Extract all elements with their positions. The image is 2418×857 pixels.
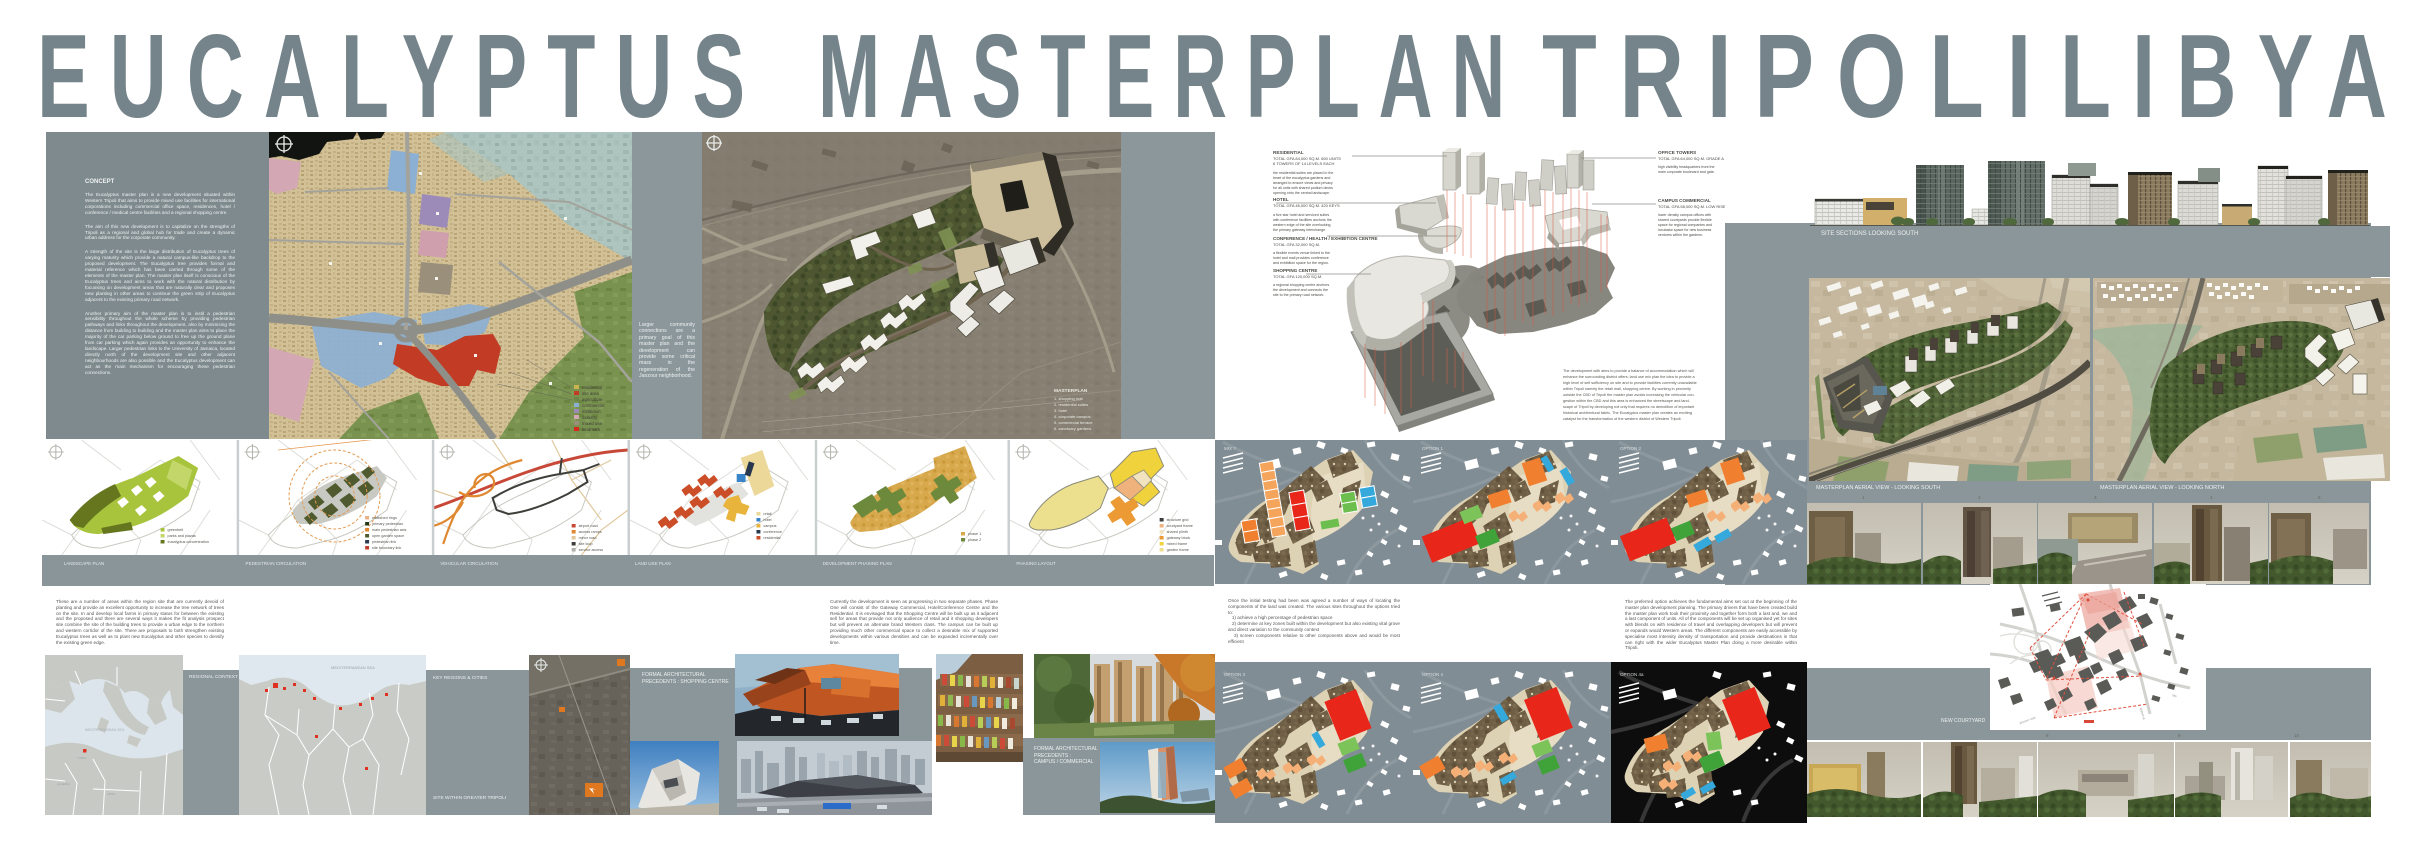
svg-text:main pedestrian axis: main pedestrian axis <box>372 528 406 532</box>
svg-text:OPTION 4a: OPTION 4a <box>1620 672 1644 677</box>
svg-text:ALGERIA: ALGERIA <box>57 782 70 786</box>
svg-text:structure grid: structure grid <box>1167 518 1189 522</box>
svg-text:CONFERENCE / HEALTH / EXHIBITI: CONFERENCE / HEALTH / EXHIBITION CENTRE <box>1273 236 1378 241</box>
svg-text:high visibility headquarters f: high visibility headquarters front the <box>1658 165 1715 169</box>
svg-text:site area: site area <box>582 391 599 396</box>
svg-text:mixed use: mixed use <box>582 421 603 426</box>
svg-text:minor road: minor road <box>579 536 597 540</box>
svg-text:5. commercial terrace: 5. commercial terrace <box>1054 420 1093 425</box>
svg-text:RESIDENTIAL: RESIDENTIAL <box>1273 150 1304 155</box>
svg-text:LIBYA: LIBYA <box>107 792 115 796</box>
svg-text:commercial: commercial <box>582 403 604 408</box>
svg-text:4. corporate campus: 4. corporate campus <box>1054 414 1090 419</box>
svg-text:and exhibition space for the r: and exhibition space for the region. <box>1273 261 1329 265</box>
svg-text:opening onto the central lands: opening onto the central landscape. <box>1273 191 1330 195</box>
svg-text:2. residential suites: 2. residential suites <box>1054 402 1088 407</box>
svg-text:VEHICULAR CIRCULATION: VEHICULAR CIRCULATION <box>440 561 498 566</box>
svg-text:OPTION 3: OPTION 3 <box>1224 672 1246 677</box>
svg-text:service access: service access <box>579 548 604 552</box>
svg-text:3. hotel: 3. hotel <box>1054 408 1067 413</box>
svg-text:ventures within the gardens.: ventures within the gardens. <box>1658 233 1703 237</box>
svg-text:main corporate boulevard and g: main corporate boulevard and gate. <box>1658 170 1715 174</box>
svg-text:greenbelt: greenbelt <box>168 528 185 532</box>
svg-text:gateway block: gateway block <box>1167 536 1191 540</box>
svg-text:institution: institution <box>582 409 601 414</box>
svg-text:residential: residential <box>763 536 780 540</box>
svg-text:MIX ?: MIX ? <box>1224 446 1236 451</box>
svg-text:primary pedestrian: primary pedestrian <box>372 522 403 526</box>
svg-text:courtyard frame: courtyard frame <box>1167 524 1193 528</box>
svg-text:campus: campus <box>763 524 776 528</box>
svg-text:incubator space for new busine: incubator space for new business <box>1658 228 1712 232</box>
svg-text:site boundary link: site boundary link <box>372 546 401 550</box>
svg-text:TOTAL GFA 120,000 SQ.M.: TOTAL GFA 120,000 SQ.M. <box>1273 274 1322 279</box>
svg-text:TUNIS: TUNIS <box>77 756 86 760</box>
svg-text:heart of the eucalyptus garden: heart of the eucalyptus gardens and <box>1273 176 1330 180</box>
svg-text:MEDITERRANEAN SEA: MEDITERRANEAN SEA <box>331 665 375 670</box>
svg-text:TOTAL GFA 46,000 SQ.M. 420 KEY: TOTAL GFA 46,000 SQ.M. 420 KEYS <box>1273 203 1340 208</box>
svg-text:MASTERPLAN: MASTERPLAN <box>1054 388 1088 394</box>
svg-text:hotel: hotel <box>763 518 771 522</box>
svg-text:eucalyptus concentration: eucalyptus concentration <box>168 540 209 544</box>
svg-text:TOTAL GFA 32,000 SQ.M.: TOTAL GFA 32,000 SQ.M. <box>1273 242 1320 247</box>
svg-text:a flexible events venue linked: a flexible events venue linked to the <box>1273 251 1330 255</box>
svg-text:shared courtyards provide flex: shared courtyards provide flexible <box>1658 218 1712 222</box>
svg-text:with conference facilities anc: with conference facilities anchors the <box>1273 218 1332 222</box>
svg-text:CAMPUS COMMERCIAL: CAMPUS COMMERCIAL <box>1658 198 1711 203</box>
svg-text:TOTAL GFA 64,000 SQ.M. GRADE A: TOTAL GFA 64,000 SQ.M. GRADE A <box>1658 156 1724 161</box>
svg-text:for all units with shared podi: for all units with shared podium decks <box>1273 186 1333 190</box>
svg-text:residential: residential <box>582 385 602 390</box>
svg-text:TOTAL GFA 58,000 SQ.M. LOW RIS: TOTAL GFA 58,000 SQ.M. LOW RISE <box>1658 204 1725 209</box>
svg-text:site to the primary road netwo: site to the primary road network. <box>1273 293 1324 297</box>
svg-text:scape of Tripoli by developing: scape of Tripoli by developing not only … <box>1563 405 1695 409</box>
svg-text:gestion within the CBD and thi: gestion within the CBD and this area is … <box>1563 399 1691 403</box>
svg-text:EUCALYPTUS: EUCALYPTUS <box>37 10 765 130</box>
svg-text:the residential suites are pla: the residential suites are placed in the <box>1273 171 1333 175</box>
svg-text:shared plinth: shared plinth <box>1167 530 1188 534</box>
svg-text:LANDSCAPE PLAN: LANDSCAPE PLAN <box>64 561 105 566</box>
svg-text:parks and plazas: parks and plazas <box>168 534 196 538</box>
svg-text:DEVELOPMENT PHASING PLAN: DEVELOPMENT PHASING PLAN <box>823 561 892 566</box>
svg-text:arranged to ensure views and p: arranged to ensure views and privacy <box>1273 181 1333 185</box>
svg-text:TRIPOLI: TRIPOLI <box>1542 10 2054 130</box>
svg-text:outside the CBD of Tripoli the: outside the CBD of Tripoli the master pl… <box>1563 393 1695 397</box>
svg-text:the primary gateway interchang: the primary gateway interchange. <box>1273 228 1326 232</box>
svg-text:LAND USE PLAN: LAND USE PLAN <box>635 561 671 566</box>
svg-text:OPTION 2: OPTION 2 <box>1620 446 1642 451</box>
svg-text:lower density campus offices w: lower density campus offices with <box>1658 213 1711 217</box>
svg-text:agriculture: agriculture <box>582 397 603 402</box>
svg-text:OPTION 1: OPTION 1 <box>1422 446 1444 451</box>
svg-text:LIBYA: LIBYA <box>2060 10 2408 130</box>
svg-text:industry: industry <box>582 415 598 420</box>
svg-text:site loop: site loop <box>579 542 593 546</box>
svg-text:phase 2: phase 2 <box>968 538 981 542</box>
svg-text:enhance the surrounding distri: enhance the surrounding district offers;… <box>1563 375 1696 379</box>
svg-text:OFFICE TOWERS: OFFICE TOWERS <box>1658 150 1696 155</box>
svg-text:within Tripoli namely the reta: within Tripoli namely the retail mall, s… <box>1563 387 1691 391</box>
svg-text:OPTION 4: OPTION 4 <box>1422 672 1444 677</box>
svg-text:open garden space: open garden space <box>372 534 404 538</box>
svg-text:access ramps: access ramps <box>579 530 602 534</box>
svg-text:retail: retail <box>763 512 771 516</box>
svg-text:MEDITERRANEAN SEA: MEDITERRANEAN SEA <box>85 728 125 732</box>
svg-text:historical architectural fabri: historical architectural fabric. The Euc… <box>1563 411 1692 415</box>
svg-text:garden frame: garden frame <box>1167 548 1189 552</box>
svg-text:phase 1: phase 1 <box>968 532 981 536</box>
svg-text:conference: conference <box>763 530 782 534</box>
svg-text:the development and connects t: the development and connects the <box>1273 288 1328 292</box>
svg-text:catalyst for the transformatio: catalyst for the transformation of the w… <box>1563 417 1682 421</box>
svg-text:MASTERPLAN: MASTERPLAN <box>818 10 1524 130</box>
svg-text:western edge of the site overl: western edge of the site overlooking <box>1273 223 1331 227</box>
svg-text:6 TOWERS OF 14 LEVELS EACH: 6 TOWERS OF 14 LEVELS EACH <box>1273 161 1335 166</box>
svg-text:walkshed rings: walkshed rings <box>372 516 397 520</box>
svg-text:The development with aims to p: The development with aims to provide a b… <box>1563 369 1694 373</box>
svg-text:PHASING LAYOUT: PHASING LAYOUT <box>1016 561 1056 566</box>
svg-text:pedestrian link: pedestrian link <box>372 540 396 544</box>
svg-text:a five star hotel and serviced: a five star hotel and serviced suites <box>1273 213 1329 217</box>
svg-text:a regional shopping centre anc: a regional shopping centre anchors <box>1273 283 1329 287</box>
svg-text:mixed frame: mixed frame <box>1167 542 1188 546</box>
svg-text:HOTEL: HOTEL <box>1273 197 1289 202</box>
svg-text:airport road: airport road <box>579 524 598 528</box>
svg-text:space for regional companies a: space for regional companies and <box>1658 223 1712 227</box>
svg-text:PEDESTRIAN CIRCULATION: PEDESTRIAN CIRCULATION <box>246 561 307 566</box>
svg-text:6. sanctuary gardens: 6. sanctuary gardens <box>1054 426 1091 431</box>
svg-text:high level of self sufficiency: high level of self sufficiency on site a… <box>1563 381 1697 385</box>
svg-text:SHOPPING CENTRE: SHOPPING CENTRE <box>1273 268 1317 273</box>
svg-text:hotel and mall provides confer: hotel and mall provides conference <box>1273 256 1329 260</box>
svg-text:landmark: landmark <box>582 427 601 432</box>
